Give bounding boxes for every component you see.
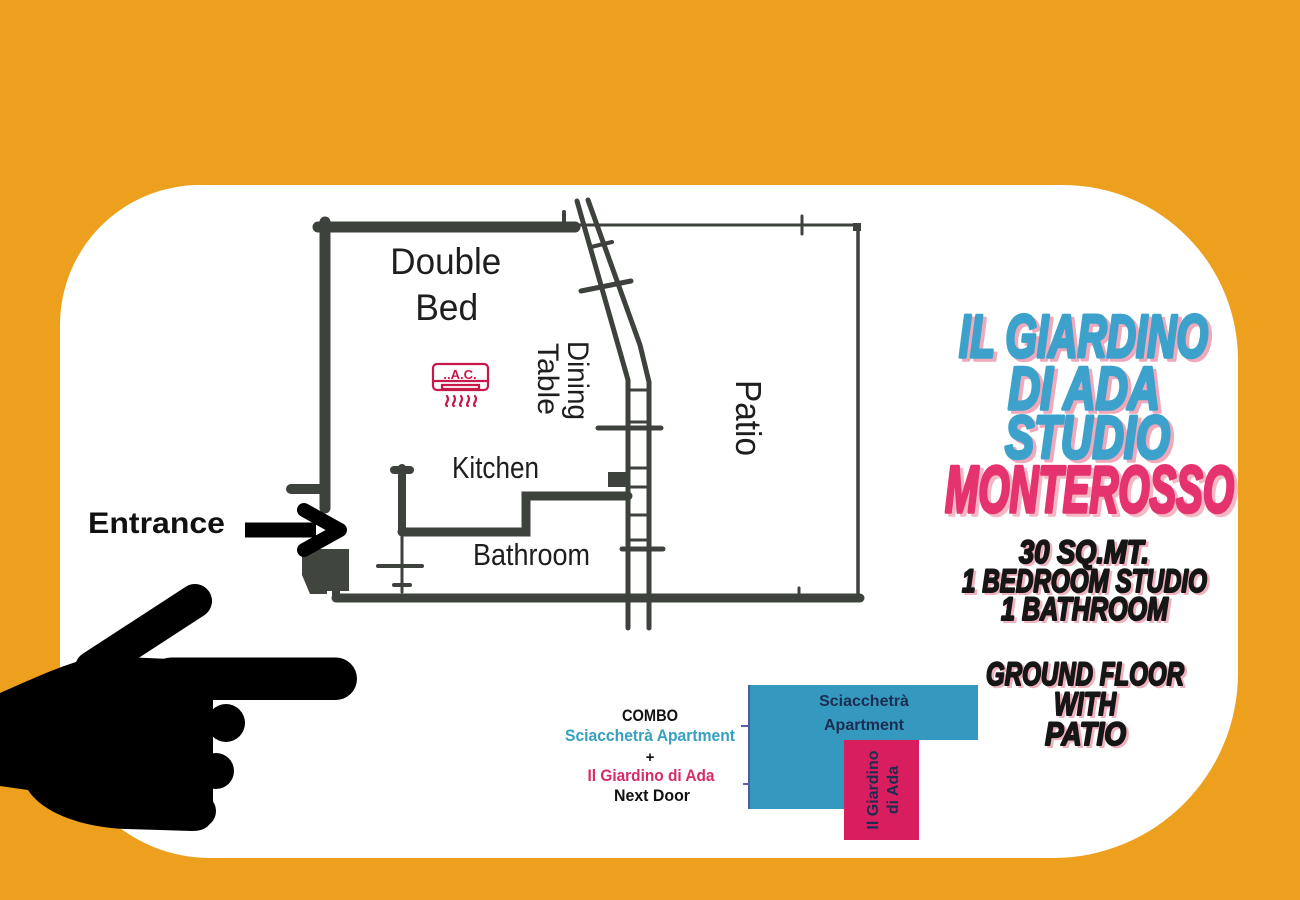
svg-text:+: + (646, 749, 655, 766)
svg-text:..A.C.: ..A.C. (443, 367, 476, 382)
svg-text:Dining: Dining (561, 341, 594, 420)
svg-text:1 BATHROOM: 1 BATHROOM (1001, 591, 1169, 627)
svg-text:Sciacchetrà Apartment: Sciacchetrà Apartment (565, 726, 735, 745)
svg-text:Table: Table (531, 343, 564, 415)
svg-text:Double: Double (390, 241, 501, 282)
svg-text:Il Giardino di Ada: Il Giardino di Ada (588, 766, 715, 785)
svg-text:Bed: Bed (415, 287, 478, 328)
svg-text:Next Door: Next Door (614, 786, 690, 805)
svg-text:Kitchen: Kitchen (452, 450, 539, 485)
svg-text:COMBO: COMBO (622, 706, 678, 725)
svg-text:MONTEROSSO: MONTEROSSO (945, 452, 1234, 526)
svg-text:Entrance: Entrance (88, 507, 225, 540)
svg-text:Patio: Patio (728, 380, 769, 456)
svg-text:Il Giardino: Il Giardino (865, 750, 882, 829)
svg-text:PATIO: PATIO (1045, 716, 1126, 752)
svg-text:Bathroom: Bathroom (473, 537, 590, 572)
svg-text:di Ada: di Ada (885, 766, 902, 814)
svg-text:Sciacchetrà: Sciacchetrà (819, 693, 909, 710)
svg-text:Apartment: Apartment (824, 717, 905, 734)
